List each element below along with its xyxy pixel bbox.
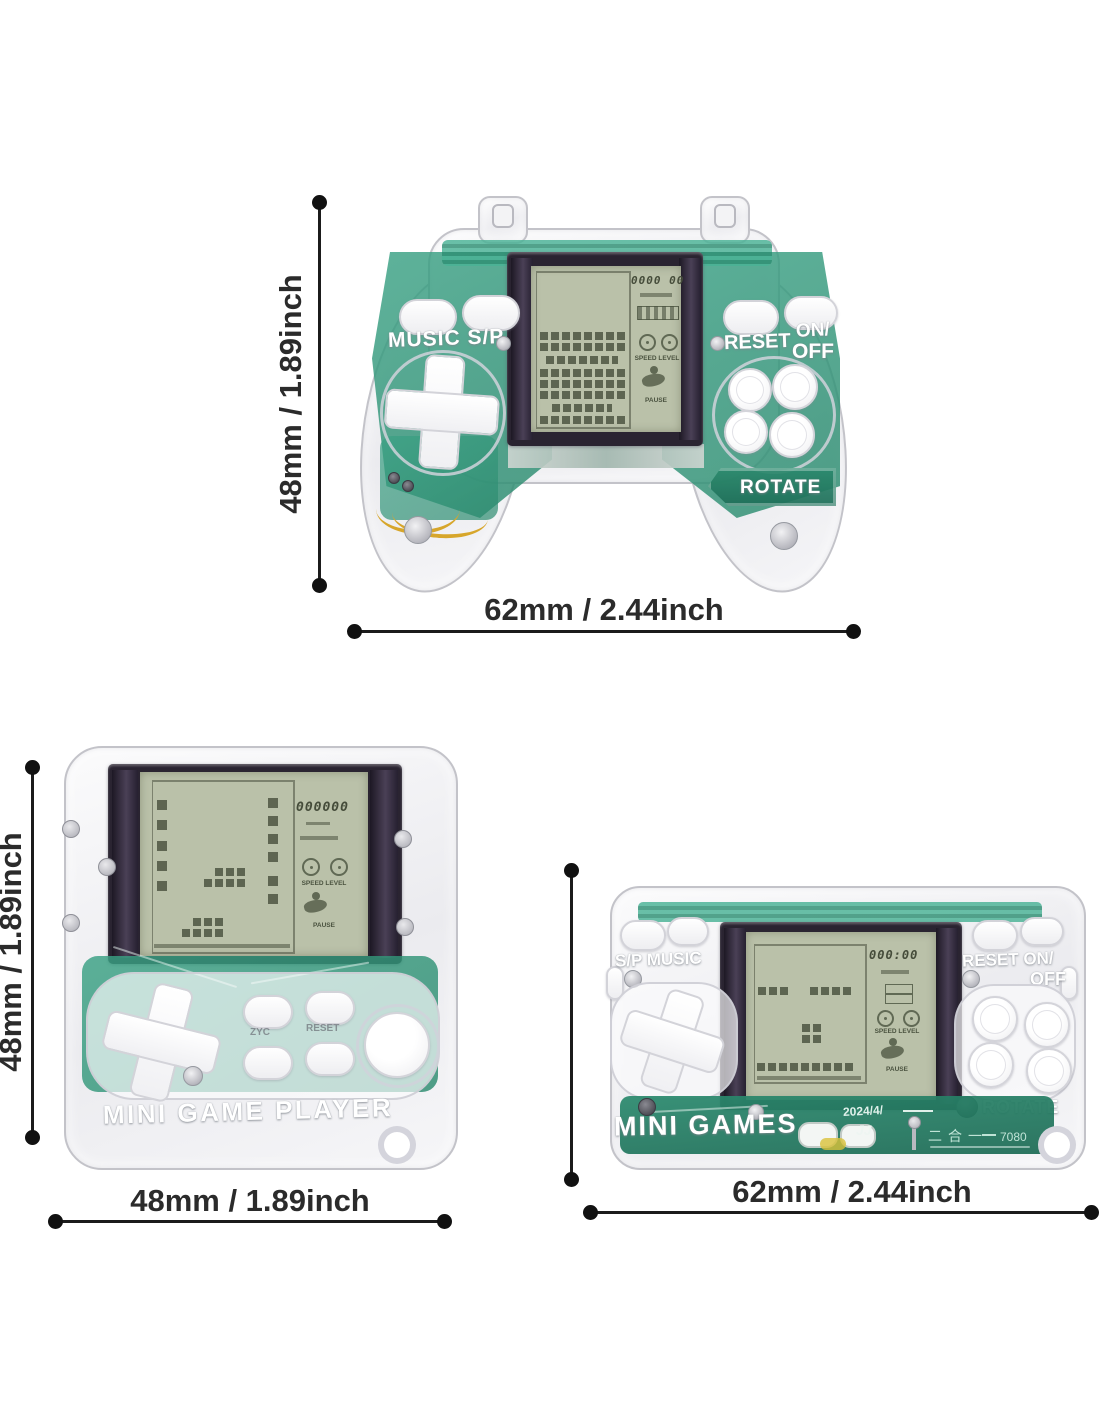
gamepad-dpad [379, 349, 501, 471]
wide-silk-dash2 [982, 1134, 996, 1136]
square-piece-1b [204, 879, 248, 890]
wide-music-button [667, 917, 709, 946]
square-block [157, 881, 167, 891]
square-piece-1a [215, 868, 248, 879]
gamepad-blocks-2 [546, 356, 618, 367]
square-lcd-band-left [112, 770, 138, 958]
gamepad-hook-left-slot [492, 204, 514, 228]
square-piece-2b [182, 929, 226, 940]
square-screw-bottom [183, 1066, 203, 1086]
wide-button-a [972, 996, 1018, 1042]
square-lcd-icon-left [302, 858, 320, 876]
gamepad-lcd-score: 0000 00 [631, 274, 684, 287]
wide-blocks-2 [810, 987, 854, 998]
square-pill-top-left [243, 995, 293, 1029]
wide-height-dimension-line [570, 868, 573, 1182]
square-pin-4 [394, 830, 412, 848]
square-block [157, 861, 167, 871]
square-round-button [364, 1012, 430, 1078]
gamepad-width-dimension-line [352, 630, 856, 633]
wide-button-d [1026, 1048, 1072, 1094]
square-lcd-speed-label: SPEED LEVEL [292, 880, 356, 887]
gamepad-lcd-icon-right [661, 334, 678, 351]
wide-blocks-bottom [757, 1063, 856, 1074]
gamepad-height-dimension-line [318, 200, 321, 588]
gamepad-width-dimension-label: 62mm / 2.44inch [454, 592, 754, 628]
wide-button-c [968, 1042, 1014, 1088]
gamepad-height-dimension-label: 48mm / 1.89inch [273, 244, 309, 544]
square-game-floor [154, 944, 290, 948]
square-block [268, 852, 278, 862]
wide-lcd-score: 000:00 [869, 948, 918, 962]
wide-lcd-icon-left [877, 1010, 894, 1027]
square-block [157, 820, 167, 830]
wide-reset-button [972, 920, 1018, 951]
gamepad-lcd-character [640, 366, 668, 392]
wide-sp-music-label: S/P MUSIC [615, 948, 702, 971]
wide-lcd-icon-right [903, 1010, 920, 1027]
gamepad-screw-left-grip [404, 516, 432, 544]
wide-screw-right [962, 970, 980, 988]
square-pin-3 [62, 914, 80, 932]
square-height-dimension-line [31, 765, 34, 1140]
wide-game-floor [757, 1076, 861, 1080]
square-block [268, 834, 278, 844]
gamepad-lcd-band-left [511, 258, 533, 440]
square-lcd-pause-label: PAUSE [296, 922, 352, 929]
gamepad-blocks-3 [540, 369, 626, 402]
square-hang-ring [378, 1126, 416, 1164]
square-block [157, 800, 167, 810]
square-zyc-label: ZYC [250, 1027, 270, 1038]
gamepad-lcd-caption-bar [640, 293, 672, 297]
wide-lcd-next-box-bottom [885, 994, 913, 1004]
square-block [268, 798, 278, 808]
gamepad-lcd-speed-label: SPEED LEVEL [630, 355, 684, 362]
wide-onoff-button [1020, 917, 1064, 946]
wide-silk-date: 2024/4/ [843, 1103, 884, 1119]
square-piece-2a [193, 918, 226, 929]
wide-lcd-next-box-top [885, 984, 913, 994]
wide-pcb-trace-2 [930, 1146, 1030, 1148]
square-block [157, 841, 167, 851]
wide-silk-model: 7080 [1000, 1130, 1027, 1144]
square-block [268, 876, 278, 886]
square-pill-top-right [305, 991, 355, 1025]
square-lcd-character [302, 892, 330, 918]
wide-console-name: MINI GAMES [614, 1108, 798, 1142]
wide-width-dimension-label: 62mm / 2.44inch [702, 1174, 1002, 1210]
wide-lcd-character [879, 1038, 907, 1064]
square-lcd-icon-right [330, 858, 348, 876]
gamepad-blocks-1 [540, 332, 626, 354]
product-dimension-image: 48mm / 1.89inch 62mm / 2.44inch [0, 0, 1100, 1422]
gamepad-screw-right-small [710, 336, 725, 351]
wide-button-b [1024, 1002, 1070, 1048]
gamepad-button-c [724, 410, 768, 454]
wide-lcd-speed-label: SPEED LEVEL [866, 1028, 928, 1035]
square-reset-label: RESET [306, 1023, 339, 1034]
wide-piece [802, 1024, 824, 1046]
square-pill-bottom-left [243, 1046, 293, 1080]
gamepad-metal-strip [508, 444, 704, 468]
component-dot-1 [388, 472, 400, 484]
gamepad-button-b [772, 364, 818, 410]
wide-yellow-component [820, 1138, 846, 1150]
square-width-dimension-line [53, 1220, 447, 1223]
wide-silk-cn: 二合一 [928, 1126, 988, 1146]
wide-silk-jj: JJ [856, 1122, 872, 1138]
square-block [268, 816, 278, 826]
wide-silk-dash [903, 1110, 933, 1112]
square-block [268, 894, 278, 904]
wide-lcd-pause-label: PAUSE [872, 1066, 922, 1073]
gamepad-reset-label: RESET [724, 330, 791, 355]
gamepad-button-d [769, 412, 815, 458]
gamepad-screw-right-grip [770, 522, 798, 550]
wide-sp-button [620, 920, 666, 951]
gamepad-hook-right-slot [714, 204, 736, 228]
wide-blocks-1 [758, 987, 791, 998]
gamepad-lcd-next-box [637, 306, 679, 320]
square-lcd-band-right [370, 770, 398, 958]
square-lcd-caption-bar [306, 822, 330, 825]
square-pin-2 [98, 858, 116, 876]
gamepad-lcd-pause-label: PAUSE [634, 397, 678, 404]
wide-lcd-caption-bar [881, 970, 909, 974]
gamepad-button-a [728, 368, 772, 412]
square-lcd-score: 000000 [296, 800, 349, 815]
wide-hang-ring [1038, 1126, 1076, 1164]
wide-pin-head [908, 1116, 921, 1129]
gamepad-rotate-label: ROTATE [740, 477, 821, 499]
gamepad-screw-left-small [496, 336, 511, 351]
square-pin-5 [396, 918, 414, 936]
gamepad-lcd-icon-left [639, 334, 656, 351]
square-pin-1 [62, 820, 80, 838]
gamepad-blocks-5 [540, 416, 626, 427]
square-height-dimension-label: 48mm / 1.89inch [0, 802, 29, 1102]
wide-width-dimension-line [588, 1211, 1094, 1214]
square-lcd-caption-bar2 [300, 836, 338, 840]
dpad-horizontal-arm [384, 388, 501, 436]
gamepad-music-sp-label: MUSIC S/P [388, 325, 505, 353]
square-pill-bottom-right [305, 1042, 355, 1076]
square-width-dimension-label: 48mm / 1.89inch [100, 1183, 400, 1219]
gamepad-blocks-4 [552, 404, 612, 415]
component-dot-2 [402, 480, 414, 492]
